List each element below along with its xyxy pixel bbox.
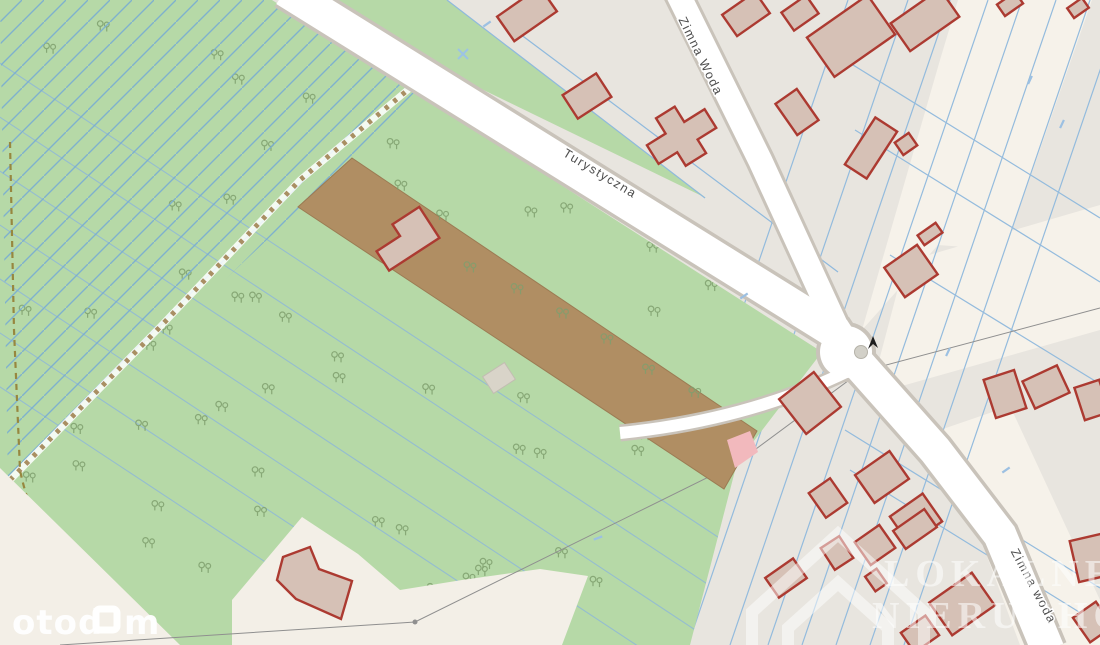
- junction-tree: [855, 346, 868, 359]
- brand-text-left: otod: [12, 603, 103, 643]
- agency-name-line2: NIERUCHOMOŚCI: [872, 595, 1100, 637]
- brand-watermark: otod m: [12, 603, 160, 643]
- map-canvas[interactable]: Turystyczna Zimna Woda Zimna woda LOKALN…: [0, 0, 1100, 645]
- map-image[interactable]: Turystyczna Zimna Woda Zimna woda LOKALN…: [0, 0, 1100, 645]
- brand-text-right: m: [124, 603, 160, 643]
- agency-name-line1: LOKALNE: [884, 553, 1100, 595]
